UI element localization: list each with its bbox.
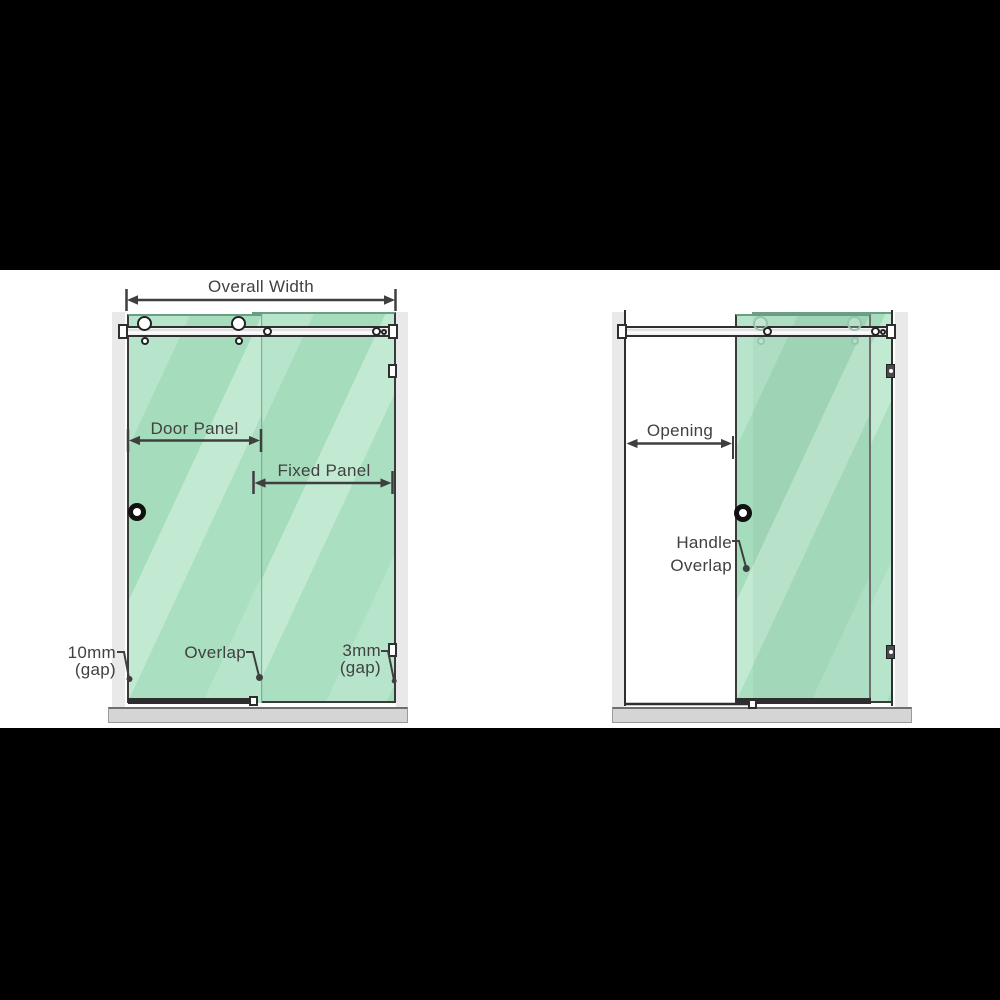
wall-clip-top: [388, 364, 397, 378]
roller-wheel-behind-glass: [847, 316, 862, 331]
top-rail: [120, 326, 396, 337]
roller-stop-behind-glass: [757, 337, 765, 345]
wall-clip-bottom: [886, 645, 895, 659]
roller-wheel: [231, 316, 246, 331]
label-handle-overlap-line1: Handle: [638, 531, 732, 554]
door-handle-knob: [734, 504, 752, 522]
figure-canvas: Overall Width Door Panel Fixed Panel 10m…: [0, 0, 1000, 1000]
wall-clip-top: [886, 364, 895, 378]
label-handle-overlap: Handle Overlap: [638, 531, 732, 577]
wall-edge-line-left: [624, 310, 626, 706]
door-bottom-guide: [748, 699, 757, 709]
rail-fixing-pin: [263, 327, 272, 336]
door-bottom-guide: [249, 696, 258, 706]
rail-fixing-pin: [871, 327, 880, 336]
rail-fixing-pin: [763, 327, 772, 336]
roller-stop: [235, 337, 243, 345]
rail-end-cap-right: [886, 324, 896, 339]
label-door-panel: Door Panel: [127, 420, 262, 437]
label-gap-left-unit: (gap): [58, 661, 116, 678]
wall-clip-bottom: [388, 643, 397, 657]
shower-base-tray: [612, 707, 912, 723]
label-gap-right-unit: (gap): [330, 659, 381, 676]
letterbox-bottom: [0, 728, 1000, 1000]
rail-fixing-pin: [372, 327, 381, 336]
label-gap-right-value: 3mm: [330, 642, 381, 659]
rail-fixing-pin: [381, 329, 387, 335]
rail-fixing-pin: [880, 329, 886, 335]
label-fixed-panel: Fixed Panel: [253, 462, 395, 479]
label-gap-left-value: 10mm: [58, 644, 116, 661]
label-opening: Opening: [625, 422, 735, 439]
shower-base-tray: [108, 707, 408, 723]
label-overall-width: Overall Width: [126, 278, 396, 295]
wall-strip-right: [396, 312, 408, 707]
label-gap-left: 10mm (gap): [58, 644, 116, 678]
door-bottom-seal: [128, 698, 250, 704]
roller-stop-behind-glass: [851, 337, 859, 345]
roller-stop: [141, 337, 149, 345]
wall-strip-left: [612, 312, 624, 707]
panel-overlap-region: [753, 315, 870, 701]
roller-wheel: [137, 316, 152, 331]
rail-end-cap-left: [118, 324, 128, 339]
label-overlap: Overlap: [175, 644, 246, 661]
wall-strip-right: [895, 312, 908, 707]
rail-end-cap-left: [617, 324, 627, 339]
rail-end-cap-right: [388, 324, 398, 339]
door-handle-knob: [128, 503, 146, 521]
letterbox-top: [0, 0, 1000, 270]
label-gap-right: 3mm (gap): [330, 642, 381, 676]
label-handle-overlap-line2: Overlap: [638, 554, 732, 577]
